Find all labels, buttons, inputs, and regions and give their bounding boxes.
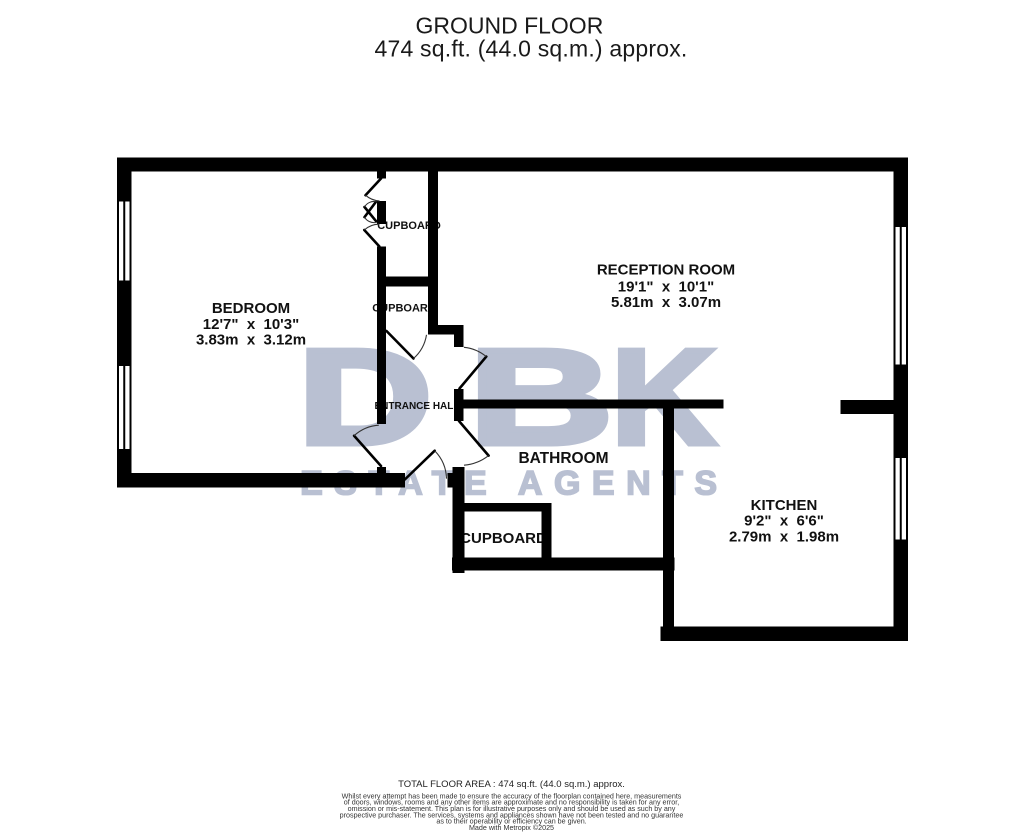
svg-text:BATHROOM: BATHROOM (518, 450, 608, 467)
svg-text:GROUND FLOOR: GROUND FLOOR (415, 13, 603, 39)
svg-text:9'2" x 6'6": 9'2" x 6'6" (744, 513, 824, 530)
svg-text:12'7" x 10'3": 12'7" x 10'3" (203, 316, 299, 333)
svg-text:TOTAL FLOOR AREA : 474 sq.ft.: TOTAL FLOOR AREA : 474 sq.ft. (44.0 sq.m… (398, 779, 625, 790)
svg-text:CUPBOARD: CUPBOARD (460, 530, 547, 547)
svg-text:KITCHEN: KITCHEN (751, 497, 818, 514)
svg-text:19'1" x 10'1": 19'1" x 10'1" (618, 278, 714, 295)
svg-text:BEDROOM: BEDROOM (212, 300, 290, 317)
svg-text:3.83m x 3.12m: 3.83m x 3.12m (196, 332, 306, 349)
svg-text:5.81m x 3.07m: 5.81m x 3.07m (611, 294, 721, 311)
svg-text:Made with Metropix ©2025: Made with Metropix ©2025 (469, 824, 554, 832)
svg-text:474 sq.ft. (44.0 sq.m.) approx: 474 sq.ft. (44.0 sq.m.) approx. (374, 36, 687, 62)
svg-text:2.79m x 1.98m: 2.79m x 1.98m (729, 529, 839, 546)
svg-text:RECEPTION ROOM: RECEPTION ROOM (597, 262, 735, 279)
svg-text:ENTRANCE HALL: ENTRANCE HALL (375, 401, 460, 412)
